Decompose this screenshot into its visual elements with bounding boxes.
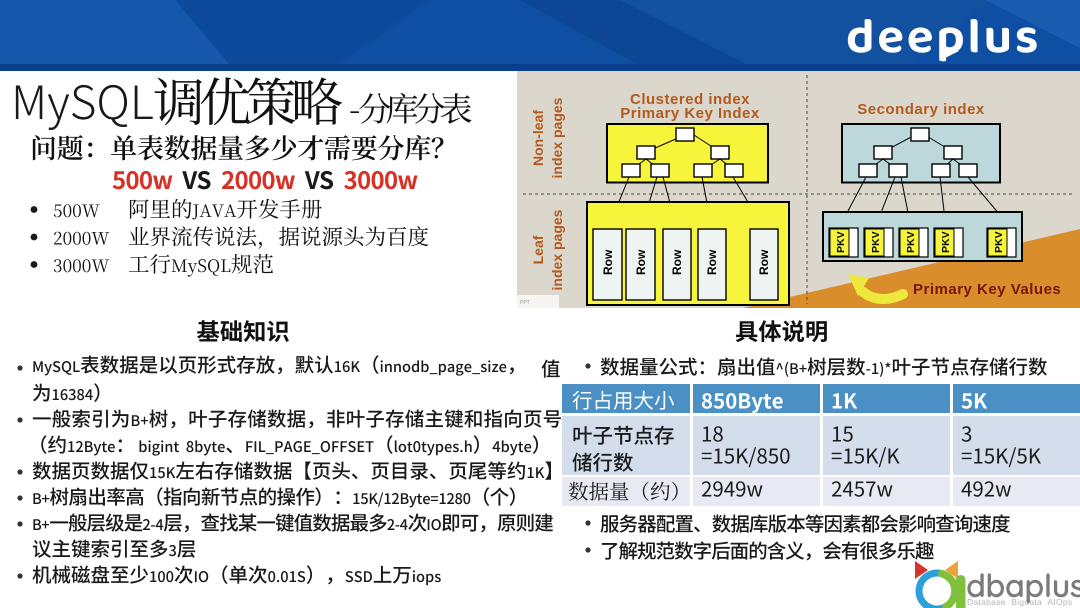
svg-text:PKV: PKV [870, 231, 882, 253]
svg-text:index pages: index pages [549, 97, 565, 178]
svg-text:Secondary index: Secondary index [857, 101, 985, 118]
svg-text:Row: Row [705, 249, 719, 275]
svg-text:PKV: PKV [835, 231, 847, 253]
svg-text:Row: Row [757, 249, 771, 275]
svg-text:PKV: PKV [940, 231, 952, 253]
svg-text:PPT: PPT [520, 300, 530, 306]
svg-text:Non-leaf: Non-leaf [530, 110, 546, 166]
svg-text:Row: Row [670, 249, 684, 275]
svg-text:PKV: PKV [905, 231, 917, 253]
svg-text:index pages: index pages [549, 209, 565, 290]
svg-text:Leaf: Leaf [530, 235, 546, 264]
svg-text:Primary Key Values: Primary Key Values [913, 281, 1061, 298]
svg-text:Row: Row [601, 249, 615, 275]
svg-text:Database Bigdata AIOps: Database Bigdata AIOps [967, 597, 1072, 607]
svg-text:Row: Row [634, 249, 648, 275]
svg-text:PKV: PKV [993, 231, 1005, 253]
svg-text:Primary Key Index: Primary Key Index [620, 105, 760, 122]
